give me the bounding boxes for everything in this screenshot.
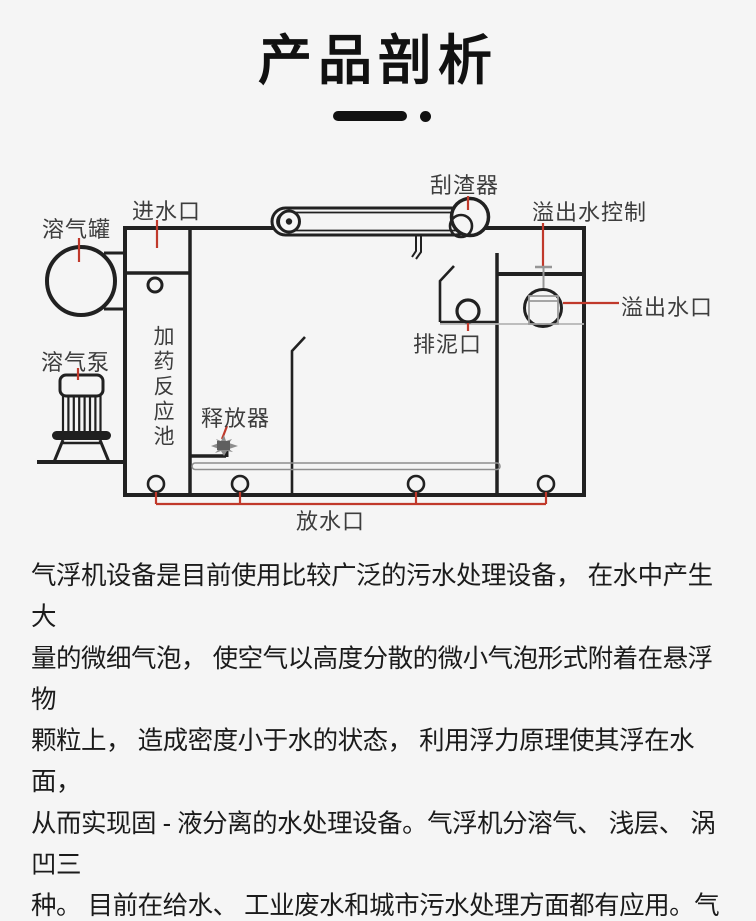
sludge-outlet-port	[457, 300, 479, 322]
label-releaser: 释放器	[201, 401, 270, 433]
label-overflow-outlet: 溢出水口	[621, 290, 713, 322]
description-text: 气浮机设备是目前使用比较广泛的污水处理设备， 在水中产生大 量的微细气泡， 使空…	[31, 556, 733, 921]
label-dosing-reaction-pool: 加药反应池	[147, 325, 177, 455]
distribution-pipe	[192, 463, 500, 470]
label-water-inlet: 进水口	[132, 194, 201, 226]
infographic-page: 产品剖析	[0, 0, 756, 921]
label-scraper: 刮渣器	[430, 168, 499, 200]
scraper-belt	[272, 199, 489, 260]
drain-outlets	[148, 476, 554, 504]
label-dissolved-air-pump: 溶气泵	[41, 345, 110, 377]
label-drain-outlet: 放水口	[296, 504, 365, 536]
baffle	[292, 337, 305, 495]
label-sludge-outlet: 排泥口	[413, 327, 482, 359]
label-overflow-control: 溢出水控制	[532, 195, 647, 227]
label-dissolved-air-tank: 溶气罐	[42, 212, 111, 244]
flotation-machine-diagram	[0, 0, 756, 545]
dissolved-air-pump-shape	[37, 375, 126, 462]
dissolved-air-tank-shape	[47, 247, 125, 315]
